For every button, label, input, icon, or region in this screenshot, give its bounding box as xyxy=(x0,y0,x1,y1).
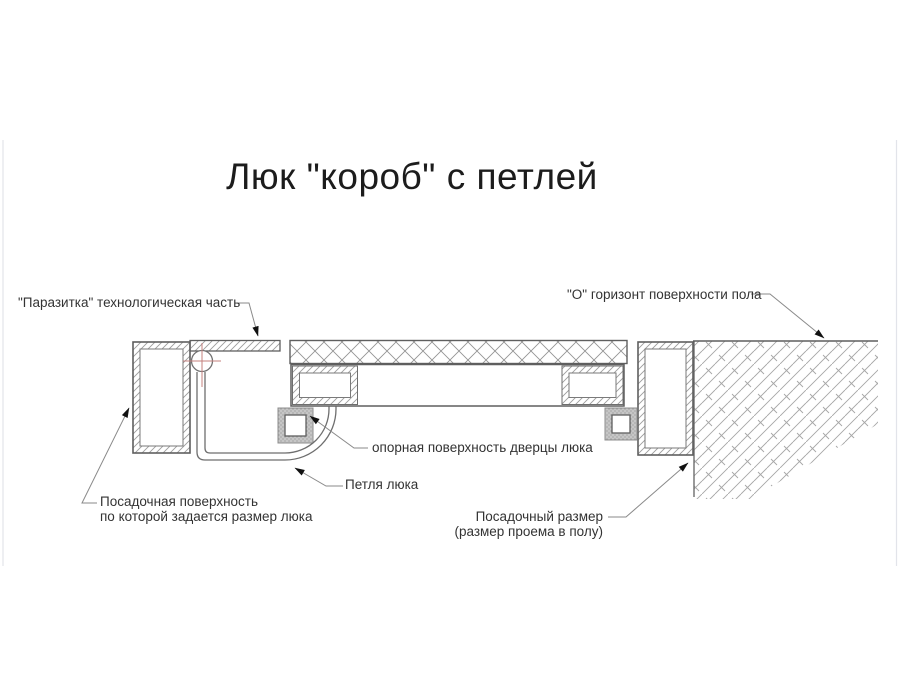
hinge-block-left xyxy=(278,408,313,443)
label-posad-left-line2: по которой задается размер люка xyxy=(100,509,313,524)
label-posad-left: Посадочная поверхность по которой задает… xyxy=(100,494,313,524)
diagram-page: Люк "короб" с петлей xyxy=(0,0,900,700)
label-posad-left-line1: Посадочная поверхность xyxy=(100,494,313,509)
page-title: Люк "короб" с петлей xyxy=(0,156,824,198)
label-petlya: Петля люка xyxy=(345,477,418,492)
right-frame-profile xyxy=(638,342,693,455)
leader-opornaya xyxy=(310,416,368,448)
door-frame-profile xyxy=(291,365,624,407)
leader-posad-right xyxy=(608,463,688,517)
door-tile-slab xyxy=(290,341,627,364)
leader-petlya xyxy=(295,468,343,486)
floor-concrete-mass xyxy=(694,341,878,499)
hinge-block-right xyxy=(605,408,637,440)
label-posad-right-line2: (размер проема в полу) xyxy=(403,524,603,539)
leader-posad-left xyxy=(82,408,129,503)
top-flange-plate xyxy=(190,341,280,352)
label-posad-right: Посадочный размер (размер проема в полу) xyxy=(403,509,603,539)
left-frame-profile xyxy=(133,342,190,453)
technical-drawing xyxy=(0,0,900,700)
label-posad-right-line1: Посадочный размер xyxy=(403,509,603,524)
label-o-horizon: "О" горизонт поверхности пола xyxy=(567,287,762,302)
label-opornaya: опорная поверхность дверцы люка xyxy=(372,440,593,455)
label-parasitka: "Паразитка" технологическая часть xyxy=(18,295,240,310)
